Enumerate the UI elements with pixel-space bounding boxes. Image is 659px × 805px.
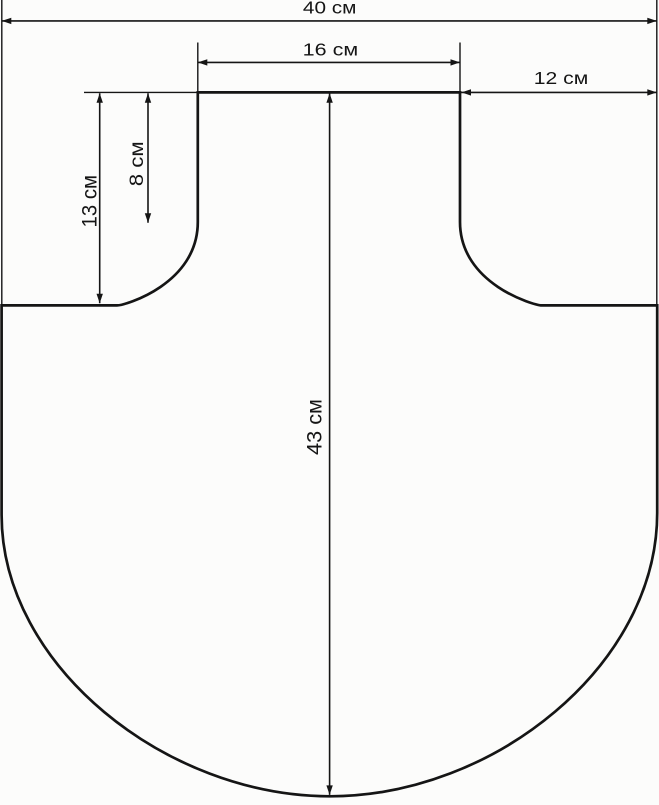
svg-text:43 см: 43 см	[304, 399, 327, 455]
svg-text:16 см: 16 см	[303, 39, 359, 59]
svg-text:40 см: 40 см	[303, 0, 357, 18]
svg-text:13 см: 13 см	[78, 175, 101, 228]
svg-text:12 см: 12 см	[534, 68, 589, 88]
svg-text:8 см: 8 см	[127, 141, 148, 186]
